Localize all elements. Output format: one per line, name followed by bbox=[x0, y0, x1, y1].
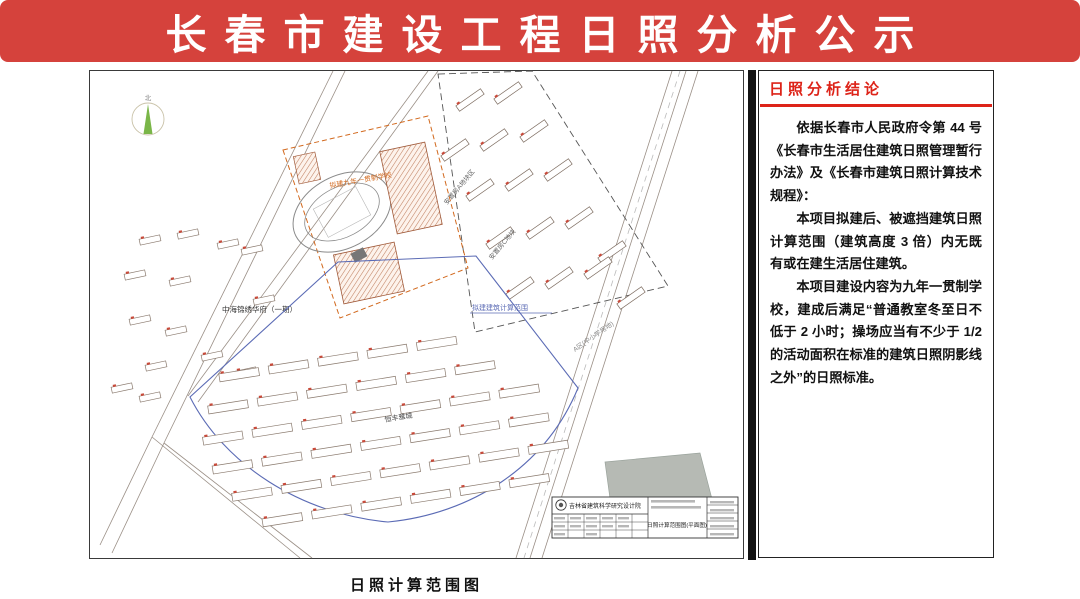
institute-name: 吉林省建筑科学研究设计院 bbox=[569, 502, 641, 510]
title-block: 吉林省建筑科学研究设计院 日照计算范围图(平面图) bbox=[552, 497, 738, 538]
site-plan-drawing: 北 安置房A地块区 安置房C地块 拟建九年一贯制学校 中海锦绣华府（一期） 拟建… bbox=[88, 70, 745, 560]
panel-divider-bar bbox=[748, 70, 756, 560]
calc-range-label: 拟建建筑计算范围 bbox=[472, 303, 528, 312]
conclusion-body: 依据长春市人民政府令第 44 号《长春市生活居住建筑日照管理暂行办法》及《长春市… bbox=[759, 107, 993, 399]
conclusion-panel: 日照分析结论 依据长春市人民政府令第 44 号《长春市生活居住建筑日照管理暂行办… bbox=[758, 70, 994, 558]
conclusion-paragraph: 本项目建设内容为九年一贯制学校，建成后满足“普通教室冬至日不低于 2 小时；操场… bbox=[770, 276, 982, 390]
conclusion-paragraph: 本项目拟建后、被遮挡建筑日照计算范围（建筑高度 3 倍）内无既有或在建生活居住建… bbox=[770, 208, 982, 276]
svg-text:北: 北 bbox=[145, 94, 152, 102]
map-caption: 日照计算范围图 bbox=[88, 574, 745, 595]
notice-banner: 长春市建设工程日照分析公示 bbox=[0, 0, 1080, 62]
site-plan-panel: 北 安置房A地块区 安置房C地块 拟建九年一贯制学校 中海锦绣华府（一期） 拟建… bbox=[88, 70, 745, 560]
conclusion-paragraph: 依据长春市人民政府令第 44 号《长春市生活居住建筑日照管理暂行办法》及《长春市… bbox=[770, 117, 982, 208]
drawing-title: 日照计算范围图(平面图) bbox=[647, 521, 707, 529]
conclusion-header: 日照分析结论 bbox=[759, 71, 993, 104]
notice-title: 长春市建设工程日照分析公示 bbox=[148, 1, 933, 61]
